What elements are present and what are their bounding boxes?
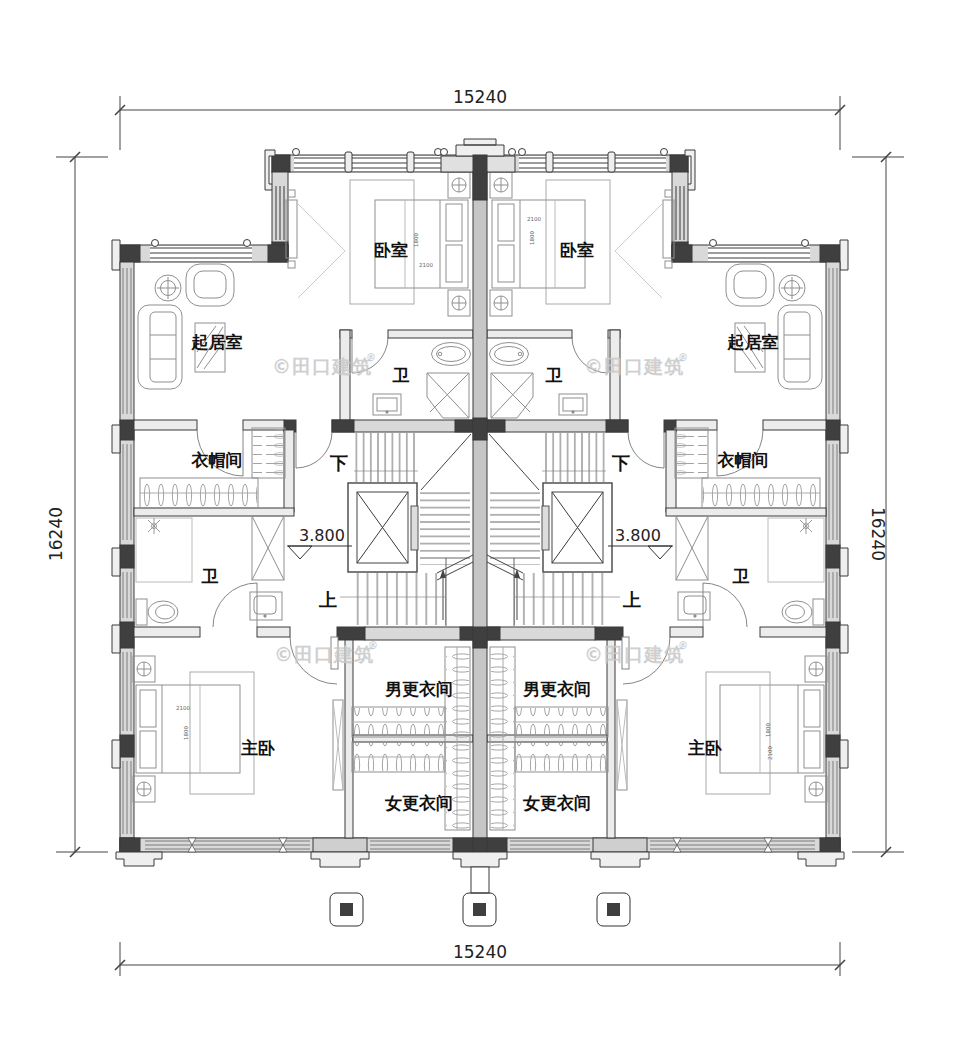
bed-dim-width: 2100: [176, 705, 190, 711]
stair-up-label-right: 上: [622, 589, 641, 610]
watermark-registered-icon: ®: [366, 352, 376, 363]
armchair-icon: [186, 264, 234, 306]
room-label-master-right: 主卧: [688, 738, 722, 758]
room-label-bath-lower-left: 卫: [201, 566, 219, 586]
ceiling-fan-icon: [148, 518, 160, 534]
bed-dim-width: 2100: [767, 746, 773, 760]
dimension-left: 16240: [46, 507, 66, 561]
room-label-womens-dressing-right: 女更衣间: [522, 793, 591, 813]
room-label-bath-upper-left: 卫: [392, 365, 410, 385]
sofa-icon: [138, 305, 182, 389]
column-footing: [463, 893, 496, 926]
room-label-cloakroom-right: 衣帽间: [717, 450, 769, 470]
bed-dim-depth: 1800: [183, 726, 189, 740]
room-label-bath-lower-right: 卫: [732, 566, 750, 586]
dimension-bottom: 15240: [453, 942, 507, 962]
column-footing: [330, 893, 363, 926]
master-bedroom-furniture: [133, 656, 343, 802]
room-label-mens-dressing-right: 男更衣间: [522, 679, 591, 699]
room-label-cloakroom-left: 衣帽间: [191, 450, 243, 470]
stair-down-label-left: 下: [329, 452, 348, 473]
elevation-symbol: [287, 546, 352, 559]
watermark-registered-icon: ®: [678, 352, 688, 363]
floor-plan-drawing: 15240 15240 16240 16240 卧室 卧室 起居室 起居室 卫 …: [0, 0, 960, 1060]
watermark-text: ©田口建筑: [272, 355, 372, 377]
bathroom-upper-fixtures: [373, 343, 471, 419]
bathtub-icon: [432, 343, 471, 366]
room-label-womens-dressing-left: 女更衣间: [384, 793, 453, 813]
bed-dim-width: 2100: [419, 262, 433, 268]
watermark-text: ©田口建筑: [274, 643, 374, 665]
elevation-value-left: 3.800: [299, 526, 345, 545]
room-label-master-left: 主卧: [241, 738, 275, 758]
toilet-icon: [136, 599, 178, 625]
living-room-furniture: [138, 264, 234, 389]
watermark-text: ©田口建筑: [584, 355, 684, 377]
stairwell: [340, 433, 477, 626]
room-label-bath-upper-right: 卫: [545, 365, 563, 385]
elevator: [348, 483, 418, 572]
bed-dim-width: 2100: [527, 216, 541, 222]
elevation-value-right: 3.800: [615, 526, 661, 545]
watermark-text: ©田口建筑: [584, 643, 684, 665]
floor-plan-canvas: 15240 15240 16240 16240 卧室 卧室 起居室 起居室 卫 …: [0, 0, 960, 1060]
bed-dim-depth: 1800: [413, 233, 419, 247]
room-label-bedroom-left: 卧室: [374, 240, 408, 260]
bed-dim-depth: 1800: [765, 723, 771, 737]
room-label-mens-dressing-left: 男更衣间: [384, 679, 453, 699]
stair-down-label-right: 下: [611, 452, 630, 473]
bed-dim-depth: 1800: [529, 231, 535, 245]
watermark-registered-icon: ®: [678, 640, 688, 651]
room-label-bedroom-right: 卧室: [560, 240, 594, 260]
watermark-registered-icon: ®: [368, 640, 378, 651]
room-label-living-left: 起居室: [191, 332, 243, 352]
dimension-top: 15240: [453, 87, 507, 107]
room-label-living-right: 起居室: [727, 332, 779, 352]
dimension-right: 16240: [868, 507, 888, 561]
stair-up-label-left: 上: [318, 589, 337, 610]
